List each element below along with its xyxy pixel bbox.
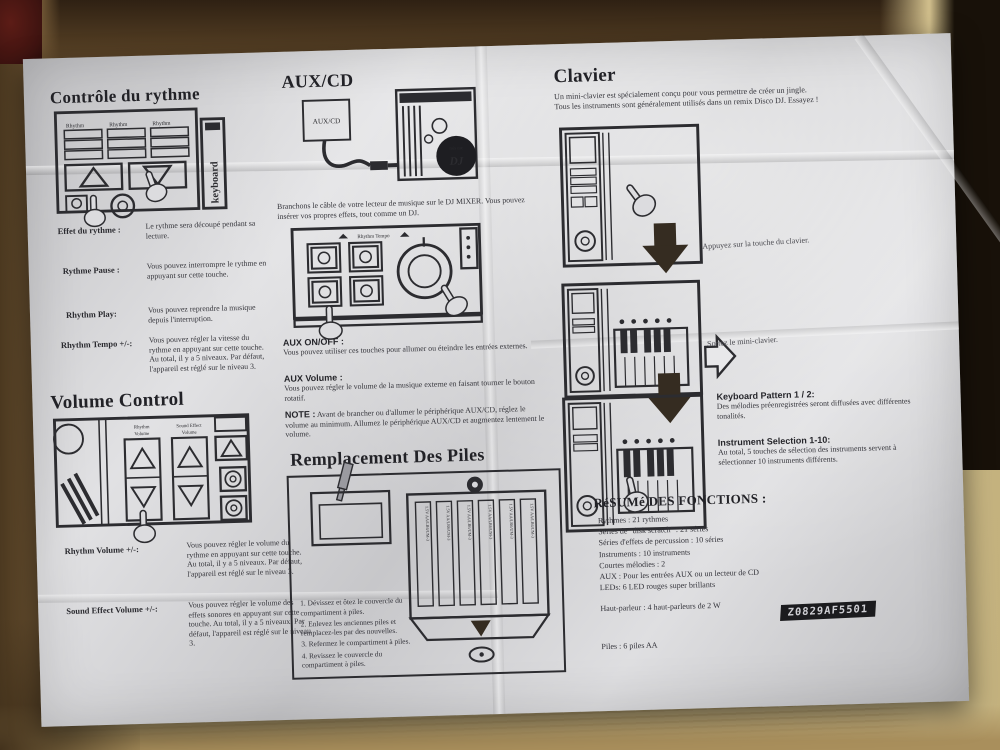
pointing-hand-icon: [133, 510, 155, 542]
def-term: Rhythm Play:: [66, 308, 152, 321]
aux-intro-text: Branchons le câble de votre lecteur de m…: [277, 195, 535, 221]
instrument-selection-block: Instrument Selection 1-10: Au total, 5 t…: [718, 432, 919, 467]
battery-marking: 1.5V AA/LR6/UM-3: [466, 505, 472, 540]
aux-cd-connection-diagram: AUX/CD mix me DJ: [279, 86, 502, 196]
def-term: Effet du rythme :: [58, 224, 144, 237]
battery-marking: 1.5V AA/LR6/UM-3: [445, 505, 451, 540]
volume-panel-diagram: Rhythm Volume Sound Effect Volume: [49, 409, 264, 531]
red-object-corner: [0, 0, 42, 64]
def-term: Rhythm Volume +/-:: [64, 543, 182, 556]
pointing-hand-icon: [620, 178, 660, 220]
def-desc: Vous pouvez reprendre la musique depuis …: [148, 302, 270, 324]
keyboard-pattern-block: Keyboard Pattern 1 / 2: Des mélodies pré…: [716, 386, 917, 421]
note-label: NOTE :: [285, 409, 316, 420]
aux-volume-block: AUX Volume : Vous pouvez régler le volum…: [284, 367, 547, 403]
def-term: Rythme Pause :: [63, 264, 149, 277]
battery-diagram-box: 1.5V AA/LR6/UM-3 1.5V AA/LR6/UM-3 1.5V A…: [287, 468, 567, 680]
battery-marking: 1.5V AA/LR6/UM-3: [508, 504, 514, 539]
panel-tempo-label: Rhythm Tempo: [357, 233, 390, 240]
photo-of-instruction-leaflet: Contrôle du rythme keyboard Rhythm Rhyth…: [0, 0, 1000, 750]
battery-marking: 1.5V AA/LR6/UM-3: [529, 503, 535, 538]
product-code-label: Z0829AF5501: [780, 601, 876, 621]
def-desc: Le rythme sera découpé pendant sa lectur…: [145, 218, 267, 240]
def-desc: Vous pouvez régler la vitesse du rythme …: [149, 332, 274, 373]
mixer-brand-small: mix me: [449, 145, 462, 150]
battery-replacement-title: Remplacement Des Piles: [290, 444, 485, 470]
instruction-leaflet: Contrôle du rythme keyboard Rhythm Rhyth…: [23, 33, 969, 727]
battery-step: 3. Refermez le compartiment à piles.: [301, 637, 417, 649]
col-label: Volume: [182, 431, 197, 436]
def-desc: Vous pouvez interrompre le rythme en app…: [147, 258, 269, 280]
col-label: Volume: [134, 432, 149, 437]
battery-step: 1. Dévissez et ôtez le couvercle du comp…: [300, 596, 416, 618]
def-term: Rhythm Tempo +/-:: [61, 338, 151, 351]
col-label: Rhythm: [134, 425, 150, 430]
battery-step: 4. Revissez le couvercle du compartiment…: [301, 648, 417, 670]
summary-list: Rythmes : 21 rythmes Séries de "disk scr…: [598, 507, 900, 594]
speaker-spec-line: Haut-parleur : 4 haut-parleurs de 2 W: [600, 600, 721, 615]
aux-note-block: NOTE : Avant de brancher ou d'allumer le…: [285, 403, 548, 440]
rhythm-button-label: Rhythm: [109, 122, 128, 129]
rhythm-button-label: Rhythm: [66, 123, 85, 130]
battery-steps-list: 1. Dévissez et ôtez le couvercle du comp…: [300, 596, 418, 672]
def-term: Sound Effect Volume +/-:: [66, 603, 188, 617]
down-arrow-icon: [642, 223, 689, 276]
mixer-brand-dj: DJ: [448, 155, 463, 167]
clavier-title: Clavier: [553, 65, 616, 89]
aux-jack-label: AUX/CD: [313, 117, 341, 126]
battery-spec-line: Piles : 6 piles AA: [601, 640, 657, 653]
note-text: Avant de brancher ou d'allumer le périph…: [285, 404, 544, 439]
battery-marking: 1.5V AA/LR6/UM-3: [487, 504, 493, 539]
rhythm-button-label: Rhythm: [152, 121, 171, 128]
summary-title: RéSUMé DES FONCTIONS :: [593, 490, 766, 511]
pointing-hand-icon: [319, 306, 343, 340]
battery-marking: 1.5V AA/LR6/UM-3: [424, 506, 430, 541]
caption-press-key: Appuyez sur la touche du clavier.: [702, 235, 809, 251]
keyboard-vertical-label: keyboard: [209, 161, 221, 203]
battery-step: 2. Enlevez les anciennes piles et rempla…: [301, 616, 417, 638]
col-label: Sound Effect: [176, 424, 202, 430]
aux-buttons-knob-diagram: Rhythm Tempo: [286, 222, 501, 332]
rhythm-panel-diagram: keyboard Rhythm Rhythm Rhythm: [46, 103, 249, 217]
